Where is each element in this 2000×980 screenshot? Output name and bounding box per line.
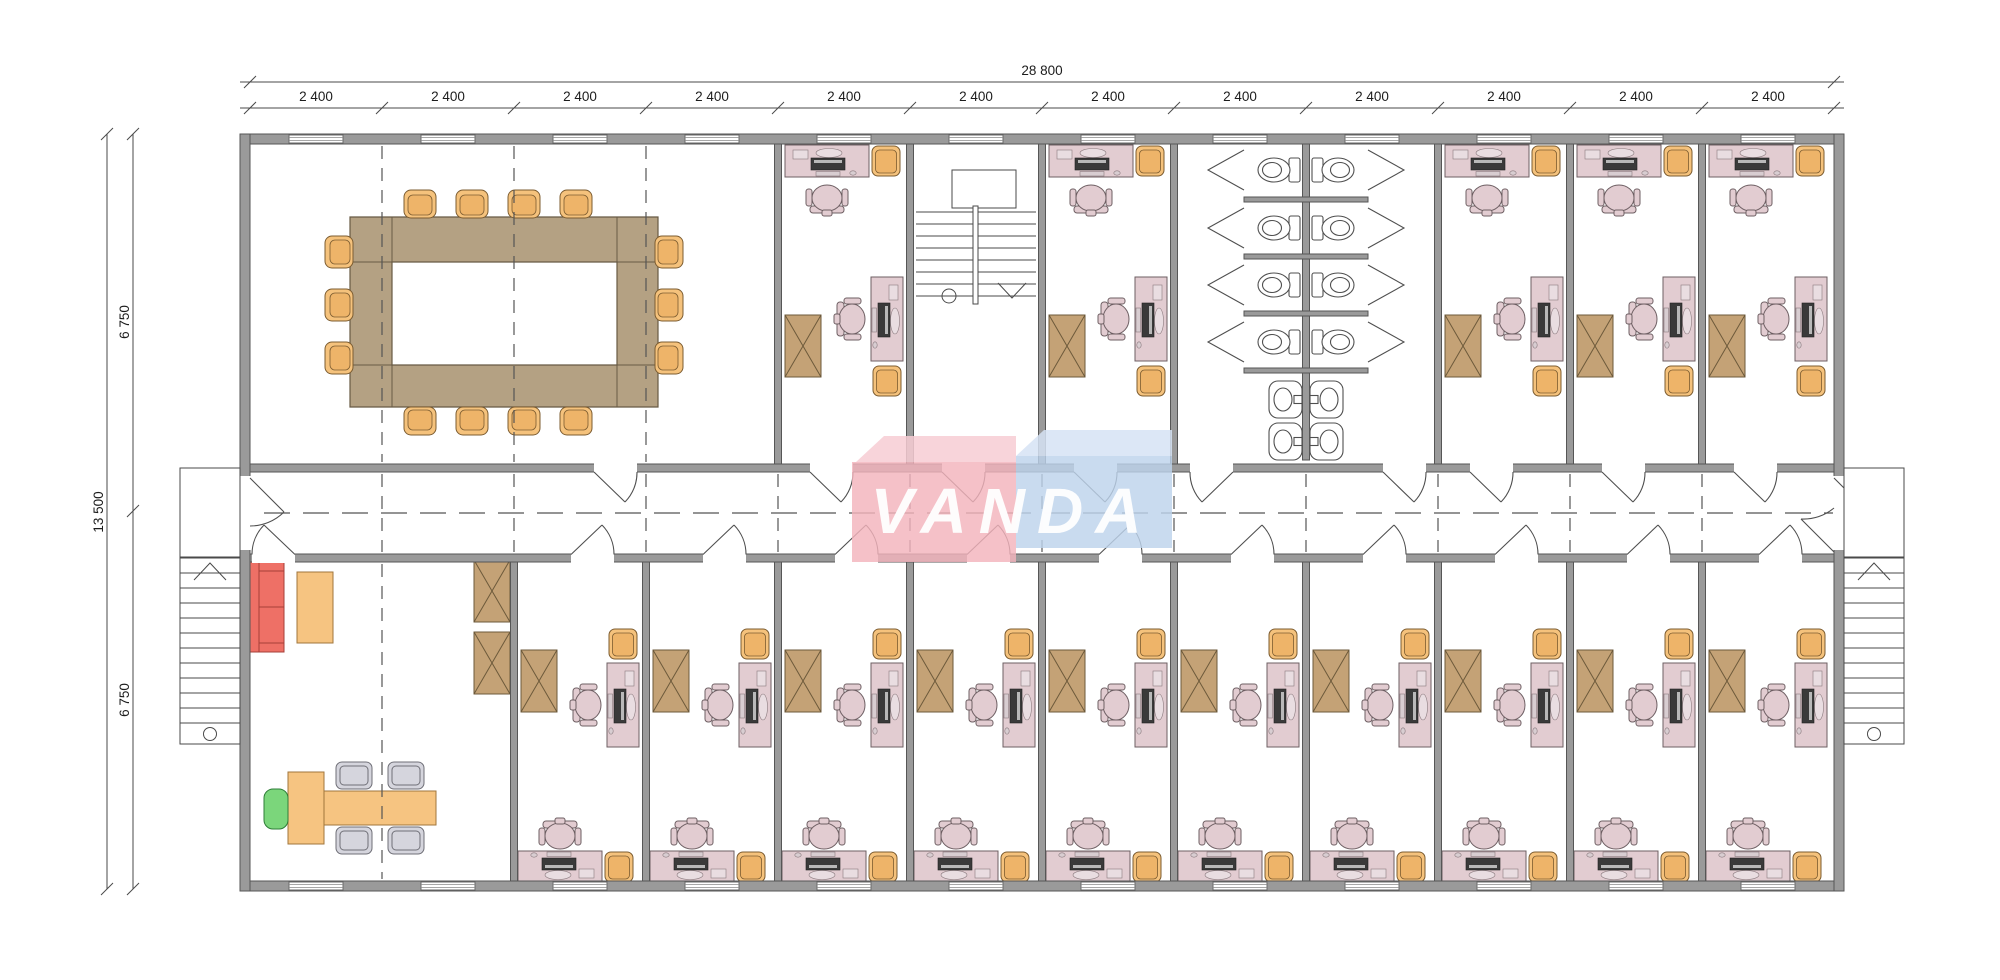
exterior-stair-west — [180, 468, 240, 744]
dim-label-bay: 2 400 — [1751, 89, 1785, 104]
dim-label-bay: 2 400 — [1091, 89, 1125, 104]
floor-plan-page: 28 800 2 400 2 400 2 400 2 400 2 400 2 4… — [0, 0, 2000, 980]
dim-label-bay: 2 400 — [959, 89, 993, 104]
dimension-left-total: 13 500 — [91, 128, 113, 895]
exterior-wall-north — [240, 134, 1844, 144]
exterior-wall-south — [240, 881, 1844, 891]
logo-vanda: VANDA — [852, 430, 1172, 562]
green-task-chair — [264, 789, 288, 829]
manager-desk — [288, 772, 324, 844]
dim-label-bay: 2 400 — [1487, 89, 1521, 104]
sofa — [250, 562, 284, 652]
dim-label-half-depth: 6 750 — [117, 305, 132, 339]
dim-label-bay: 2 400 — [563, 89, 597, 104]
dimension-top-segments: 2 400 2 400 2 400 2 400 2 400 2 400 2 40… — [240, 89, 1844, 114]
coffee-table — [297, 572, 333, 643]
dim-label-total-depth: 13 500 — [91, 491, 106, 532]
floor-plan-drawing: 28 800 2 400 2 400 2 400 2 400 2 400 2 4… — [0, 0, 2000, 980]
dim-label-total-width: 28 800 — [1021, 63, 1062, 78]
reception-desk-group — [264, 762, 436, 854]
meeting-table — [324, 791, 436, 825]
reception-room — [250, 560, 510, 854]
conference-room — [325, 190, 683, 435]
stairwell — [916, 170, 1036, 304]
corridor-wall-south — [250, 554, 1834, 562]
dim-label-bay: 2 400 — [299, 89, 333, 104]
logo-text: VANDA — [871, 475, 1154, 547]
dim-label-bay: 2 400 — [1619, 89, 1653, 104]
dim-label-bay: 2 400 — [1223, 89, 1257, 104]
dim-label-half-depth: 6 750 — [117, 683, 132, 717]
dim-label-bay: 2 400 — [695, 89, 729, 104]
dim-label-bay: 2 400 — [827, 89, 861, 104]
dimension-left-halves: 6 750 6 750 — [117, 128, 139, 895]
dimension-top-total: 28 800 — [240, 63, 1844, 88]
logo-red-top-face — [856, 436, 1016, 462]
dim-label-bay: 2 400 — [1355, 89, 1389, 104]
dim-label-bay: 2 400 — [431, 89, 465, 104]
exterior-stair-east — [1844, 468, 1904, 744]
